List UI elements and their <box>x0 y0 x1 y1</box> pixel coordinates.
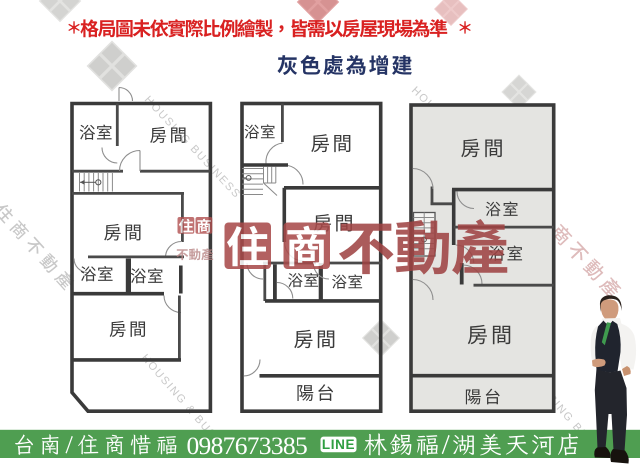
svg-text:0987673385: 0987673385 <box>187 431 308 460</box>
svg-text:LINE: LINE <box>322 437 355 452</box>
